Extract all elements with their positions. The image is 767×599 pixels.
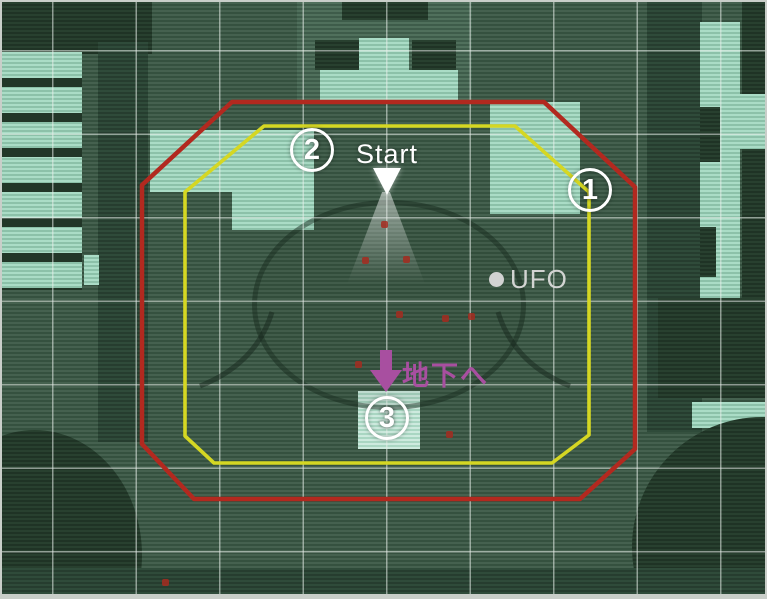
waypoint-badge-3: 3 — [365, 396, 409, 440]
waypoint-badge-2-label: 2 — [304, 134, 320, 167]
enemy-dot — [396, 311, 403, 318]
waypoint-badge-1-label: 1 — [582, 174, 598, 207]
enemy-dot — [403, 256, 410, 263]
underground-arrow-icon — [380, 350, 392, 371]
enemy-dot — [162, 579, 169, 586]
ufo-dot-icon — [489, 272, 504, 287]
waypoint-badge-2: 2 — [290, 128, 334, 172]
start-label: Start — [342, 139, 432, 170]
waypoint-badge-3-label: 3 — [379, 402, 395, 435]
enemy-dot — [442, 315, 449, 322]
underground-label: 地下へ — [402, 354, 489, 393]
enemy-dot — [381, 221, 388, 228]
ufo-marker: UFO — [489, 264, 568, 295]
underground-arrow-head-icon — [370, 370, 402, 392]
ufo-label: UFO — [510, 264, 568, 295]
enemy-dot — [468, 313, 475, 320]
enemy-dot — [446, 431, 453, 438]
enemy-dot — [362, 257, 369, 264]
enemy-dot — [355, 361, 362, 368]
waypoint-badge-1: 1 — [568, 168, 612, 212]
route-overlay — [2, 2, 767, 599]
map-stage: Start 1 2 3 UFO 地下へ — [0, 0, 767, 599]
start-triangle-icon — [373, 168, 401, 195]
